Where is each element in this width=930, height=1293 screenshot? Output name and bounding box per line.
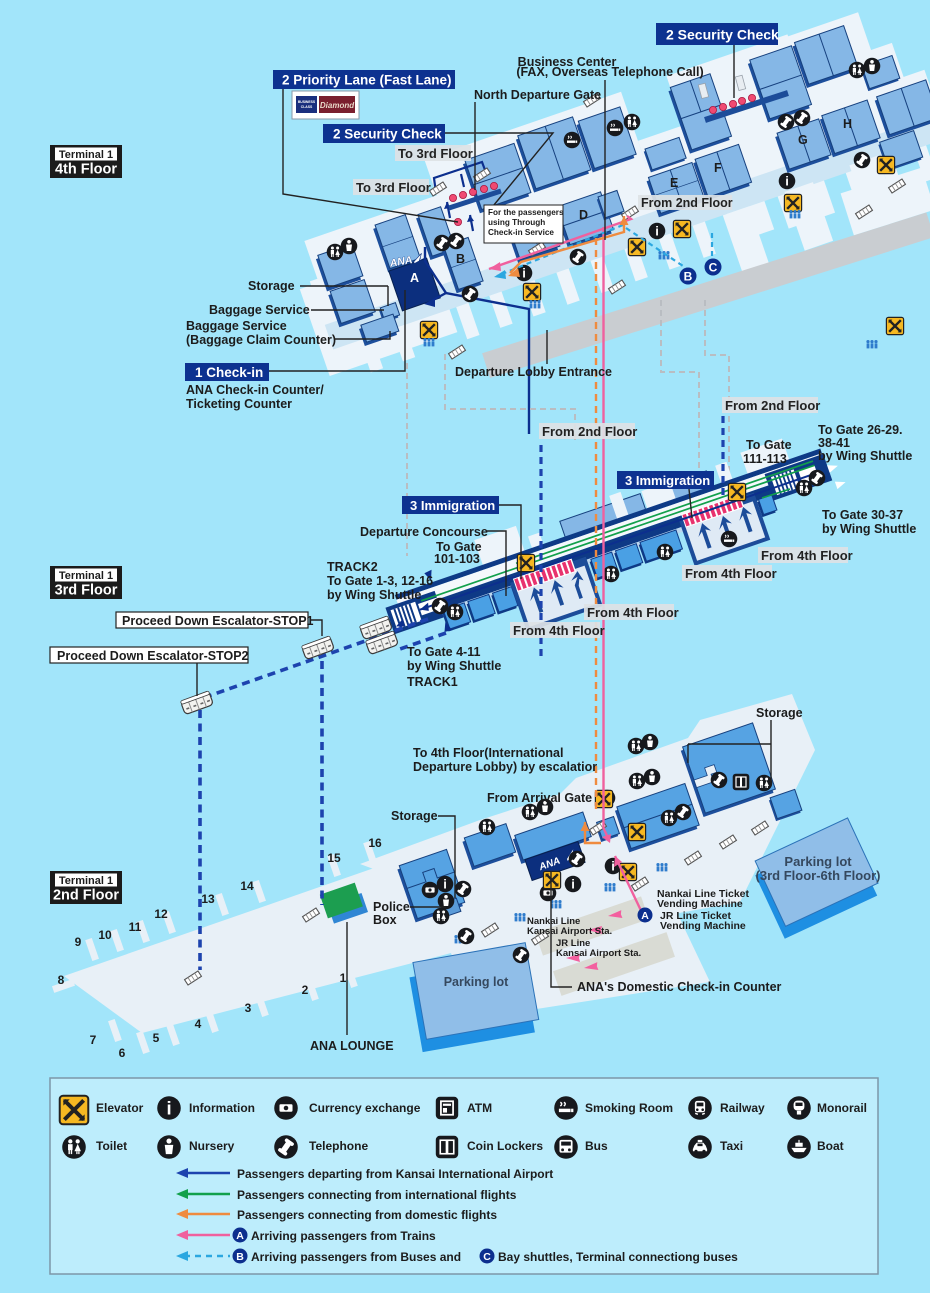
svg-text:by Wing Shuttle: by Wing Shuttle: [407, 659, 501, 673]
svg-text:CLASS: CLASS: [301, 105, 313, 109]
svg-text:by Wing Shuttle: by Wing Shuttle: [327, 588, 421, 602]
svg-text:TRACK2: TRACK2: [327, 560, 378, 574]
svg-text:To Gate 26-29.: To Gate 26-29.: [818, 423, 903, 437]
svg-text:11: 11: [129, 920, 142, 934]
svg-text:2: 2: [302, 983, 309, 997]
svg-text:B: B: [236, 1251, 244, 1263]
svg-text:Ticketing Counter: Ticketing Counter: [186, 397, 292, 411]
svg-text:D: D: [579, 208, 588, 222]
svg-text:Coin Lockers: Coin Lockers: [467, 1139, 543, 1153]
svg-text:by Wing Shuttle: by Wing Shuttle: [818, 449, 912, 463]
svg-text:Nursery: Nursery: [189, 1139, 235, 1153]
svg-text:From Arrival Gate: From Arrival Gate: [487, 791, 592, 805]
svg-text:To Gate 1-3, 12-16: To Gate 1-3, 12-16: [327, 574, 433, 588]
svg-text:2 Security Check: 2 Security Check: [333, 127, 442, 142]
svg-text:TRACK1: TRACK1: [407, 675, 458, 689]
svg-text:North Departure Gate: North Departure Gate: [474, 88, 601, 102]
svg-text:Storage: Storage: [756, 706, 803, 720]
svg-text:To 3rd Floor: To 3rd Floor: [398, 146, 473, 161]
svg-text:Bus: Bus: [585, 1139, 608, 1153]
svg-text:From 4th Floor: From 4th Floor: [761, 548, 853, 563]
svg-text:Storage: Storage: [248, 279, 295, 293]
svg-text:Parking lot: Parking lot: [444, 975, 509, 989]
svg-text:Arriving passengers from Buses: Arriving passengers from Buses and: [251, 1250, 461, 1264]
svg-text:4th Floor: 4th Floor: [55, 162, 117, 178]
svg-text:Boat: Boat: [817, 1139, 844, 1153]
svg-text:Monorail: Monorail: [817, 1101, 867, 1115]
svg-text:Vending Machine: Vending Machine: [657, 898, 743, 910]
svg-text:Passengers departing from Kans: Passengers departing from Kansai Interna…: [237, 1167, 553, 1181]
svg-text:8: 8: [58, 973, 65, 987]
svg-text:Bay shuttles, Terminal connect: Bay shuttles, Terminal connectiong buses: [498, 1250, 738, 1264]
svg-text:using Through: using Through: [488, 218, 545, 227]
svg-text:Railway: Railway: [720, 1101, 765, 1115]
svg-text:38-41: 38-41: [818, 436, 850, 450]
svg-text:111-113: 111-113: [743, 452, 787, 466]
svg-text:Elevator: Elevator: [96, 1101, 144, 1115]
svg-text:For the passengers: For the passengers: [488, 208, 564, 217]
svg-text:6: 6: [119, 1046, 126, 1060]
svg-text:BUSINESS: BUSINESS: [298, 100, 316, 104]
svg-text:A: A: [236, 1230, 244, 1242]
svg-text:Vending Machine: Vending Machine: [660, 920, 746, 932]
svg-text:Diamond: Diamond: [320, 101, 355, 110]
svg-text:9: 9: [75, 935, 82, 949]
svg-text:Police: Police: [373, 900, 410, 914]
svg-text:2 Security Check: 2 Security Check: [666, 27, 779, 43]
svg-text:Passengers connecting from dom: Passengers connecting from domestic flig…: [237, 1208, 497, 1222]
svg-text:Departure Lobby Entrance: Departure Lobby Entrance: [455, 365, 612, 379]
svg-text:To 3rd Floor: To 3rd Floor: [356, 180, 431, 195]
svg-text:Kansai Airport Sta.: Kansai Airport Sta.: [527, 926, 612, 937]
svg-text:(FAX, Overseas Telephone Call): (FAX, Overseas Telephone Call): [516, 65, 703, 79]
svg-text:Baggage Service: Baggage Service: [209, 303, 310, 317]
svg-text:13: 13: [201, 892, 215, 906]
svg-text:Parking lot: Parking lot: [784, 854, 852, 869]
svg-text:16: 16: [368, 836, 382, 850]
svg-text:From 2nd Floor: From 2nd Floor: [725, 398, 820, 413]
svg-text:101-103: 101-103: [434, 552, 480, 566]
svg-text:Storage: Storage: [391, 809, 438, 823]
svg-text:Passengers connecting from int: Passengers connecting from international…: [237, 1188, 517, 1202]
svg-text:Proceed Down Escalator-STOP1: Proceed Down Escalator-STOP1: [122, 614, 314, 628]
svg-text:Taxi: Taxi: [720, 1139, 743, 1153]
svg-text:ANA's Domestic Check-in Counte: ANA's Domestic Check-in Counter: [577, 980, 782, 994]
svg-text:12: 12: [154, 907, 168, 921]
svg-text:From 2nd Floor: From 2nd Floor: [641, 196, 733, 210]
svg-text:4: 4: [195, 1017, 202, 1031]
svg-text:Kansai Airport Sta.: Kansai Airport Sta.: [556, 948, 641, 959]
svg-text:Departure Concourse: Departure Concourse: [360, 525, 488, 539]
svg-text:B: B: [456, 252, 465, 266]
svg-text:E: E: [670, 176, 678, 190]
svg-text:7: 7: [90, 1033, 97, 1047]
svg-text:B: B: [684, 270, 693, 284]
svg-text:Telephone: Telephone: [309, 1139, 368, 1153]
svg-text:To 4th Floor(International: To 4th Floor(International: [413, 746, 563, 760]
svg-text:3: 3: [245, 1001, 252, 1015]
svg-text:3 Immigration: 3 Immigration: [410, 498, 495, 513]
svg-text:Toilet: Toilet: [96, 1139, 127, 1153]
svg-text:1 Check-in: 1 Check-in: [195, 365, 263, 380]
svg-text:From 2nd Floor: From 2nd Floor: [542, 424, 637, 439]
svg-text:ANA LOUNGE: ANA LOUNGE: [310, 1039, 394, 1053]
svg-text:A: A: [641, 910, 649, 922]
svg-text:A: A: [410, 271, 419, 285]
svg-text:3 Immigration: 3 Immigration: [625, 473, 710, 488]
svg-text:5: 5: [153, 1031, 160, 1045]
svg-text:H: H: [843, 117, 852, 131]
svg-text:C: C: [483, 1251, 491, 1263]
svg-text:2nd Floor: 2nd Floor: [53, 888, 119, 904]
svg-text:(3rd Floor-6th Floor): (3rd Floor-6th Floor): [756, 868, 881, 883]
svg-text:Check-in Service: Check-in Service: [488, 228, 554, 237]
svg-text:by Wing Shuttle: by Wing Shuttle: [822, 522, 916, 536]
svg-text:Arriving passengers from Train: Arriving passengers from Trains: [251, 1229, 436, 1243]
svg-text:14: 14: [240, 879, 254, 893]
svg-text:G: G: [798, 133, 808, 147]
svg-text:From 4th Floor: From 4th Floor: [513, 623, 605, 638]
svg-text:ANA Check-in Counter/: ANA Check-in Counter/: [186, 383, 324, 397]
svg-text:Departure Lobby) by escalatior: Departure Lobby) by escalatior: [413, 760, 597, 774]
svg-text:Proceed Down Escalator-STOP2: Proceed Down Escalator-STOP2: [57, 649, 249, 663]
svg-text:1: 1: [340, 971, 347, 985]
svg-text:Terminal 1: Terminal 1: [59, 149, 113, 161]
svg-text:To Gate: To Gate: [746, 438, 792, 452]
svg-text:Baggage Service: Baggage Service: [186, 319, 287, 333]
svg-text:3rd Floor: 3rd Floor: [55, 583, 118, 599]
svg-text:Information: Information: [189, 1101, 255, 1115]
svg-text:Smoking Room: Smoking Room: [585, 1101, 673, 1115]
svg-text:From 4th Floor: From 4th Floor: [685, 566, 777, 581]
svg-text:Terminal 1: Terminal 1: [59, 570, 113, 582]
svg-text:(Baggage Claim Counter): (Baggage Claim Counter): [186, 333, 336, 347]
svg-text:F: F: [714, 161, 722, 175]
svg-text:Terminal 1: Terminal 1: [59, 875, 113, 887]
svg-text:ATM: ATM: [467, 1101, 492, 1115]
svg-text:To Gate 4-11: To Gate 4-11: [407, 645, 480, 659]
svg-text:10: 10: [98, 928, 112, 942]
svg-text:2 Priority Lane (Fast Lane): 2 Priority Lane (Fast Lane): [282, 73, 452, 88]
svg-text:From 4th Floor: From 4th Floor: [587, 605, 679, 620]
svg-text:C: C: [709, 261, 718, 275]
svg-text:15: 15: [327, 851, 341, 865]
svg-text:Box: Box: [373, 913, 397, 927]
svg-text:Currency exchange: Currency exchange: [309, 1101, 421, 1115]
svg-text:To Gate 30-37: To Gate 30-37: [822, 508, 903, 522]
